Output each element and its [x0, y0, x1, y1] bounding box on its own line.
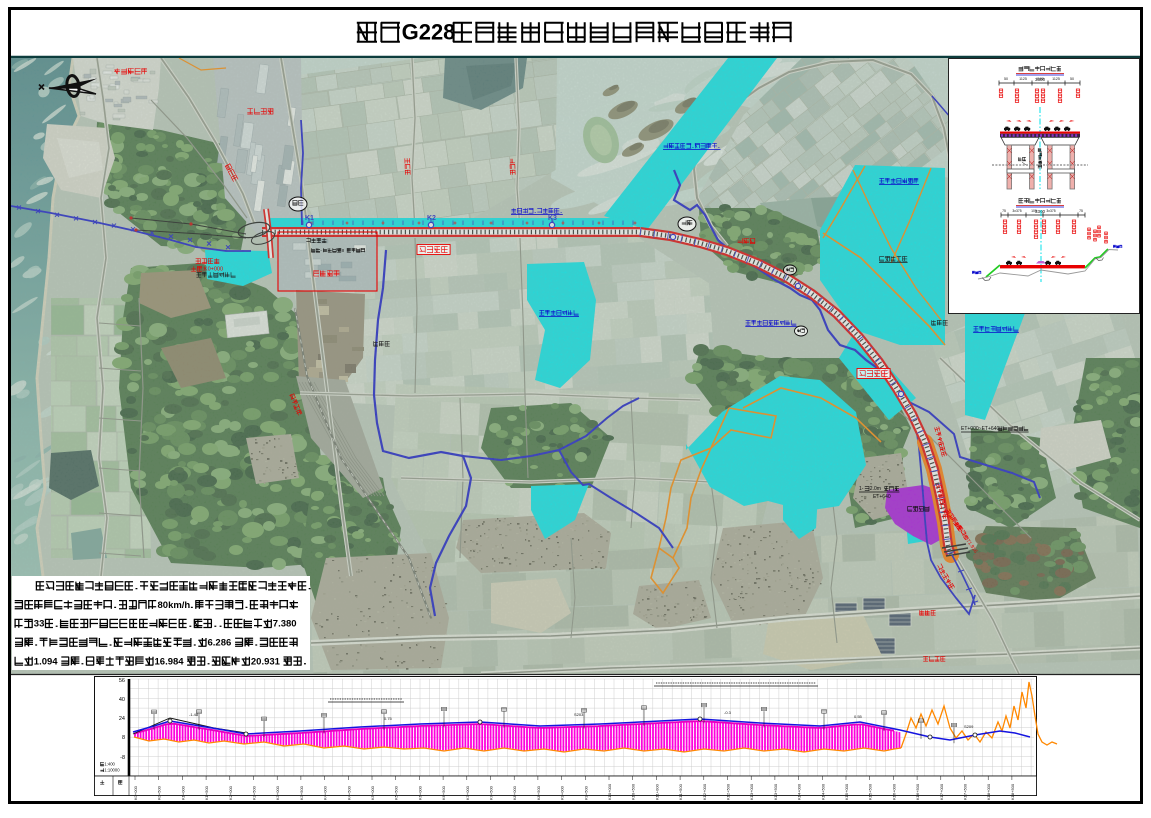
svg-text:G228: G228: [402, 20, 456, 45]
